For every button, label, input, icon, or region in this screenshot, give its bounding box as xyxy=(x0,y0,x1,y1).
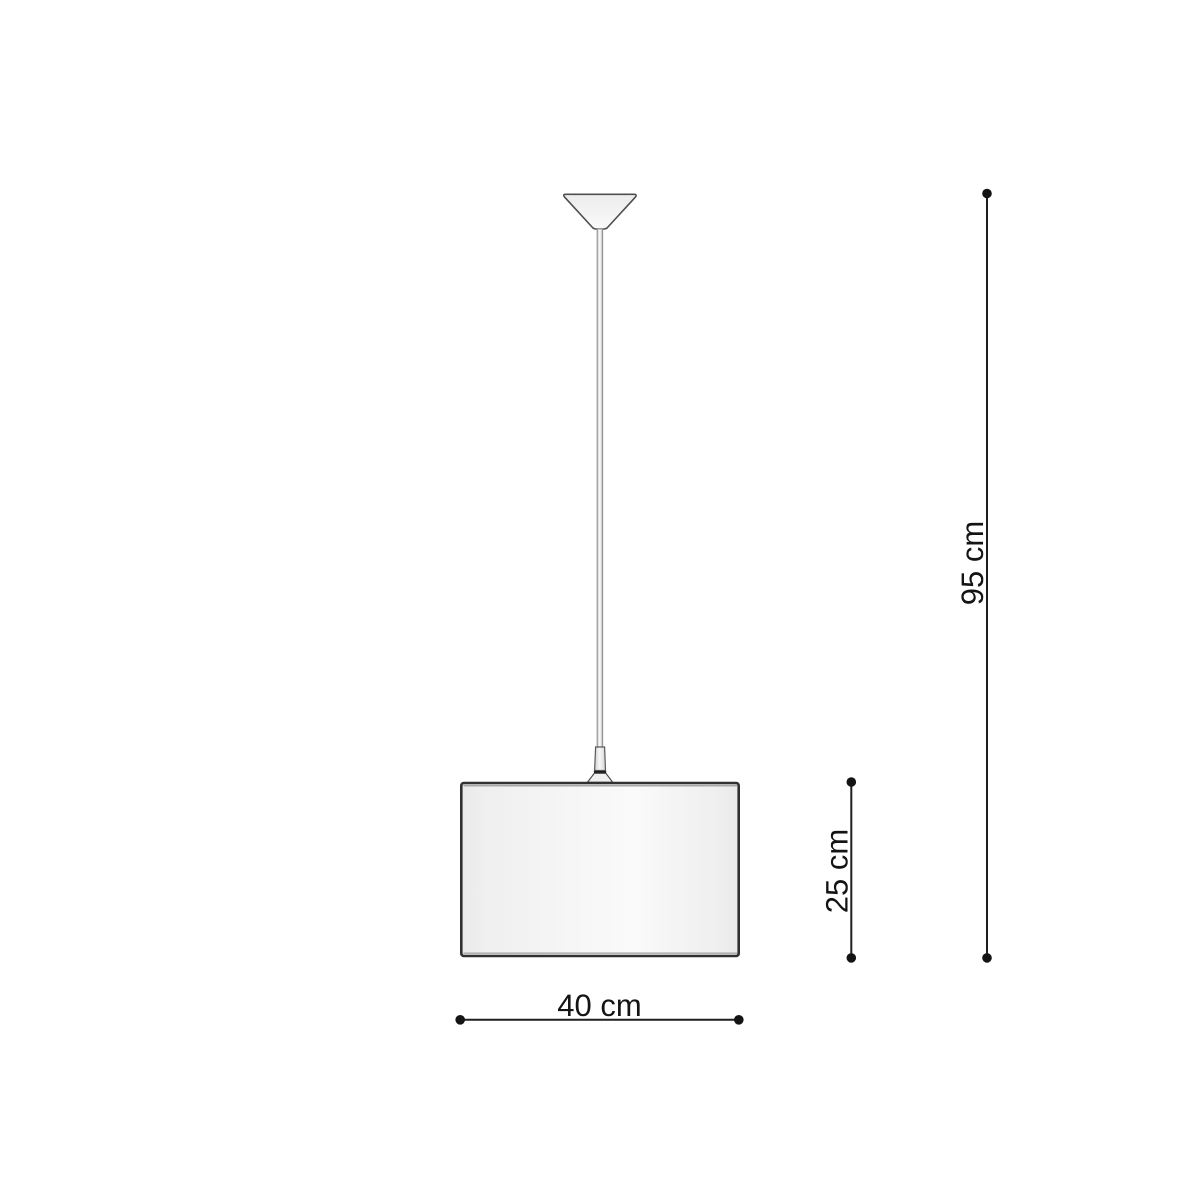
svg-text:95 cm: 95 cm xyxy=(955,521,990,605)
svg-text:40 cm: 40 cm xyxy=(557,988,641,1023)
svg-text:25 cm: 25 cm xyxy=(820,829,855,913)
